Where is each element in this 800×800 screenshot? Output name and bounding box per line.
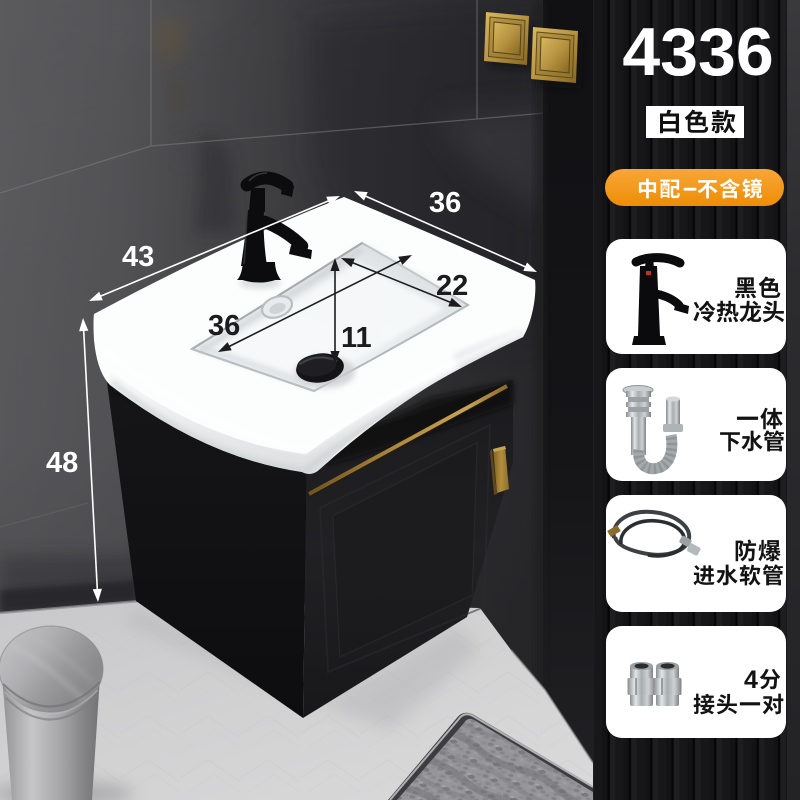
svg-text:36: 36 xyxy=(429,187,461,219)
svg-text:43: 43 xyxy=(122,241,154,273)
svg-text:4336: 4336 xyxy=(622,14,773,90)
svg-text:11: 11 xyxy=(341,322,372,354)
svg-text:22: 22 xyxy=(436,270,468,302)
svg-text:4: 4 xyxy=(744,666,758,694)
svg-text:48: 48 xyxy=(46,447,78,479)
svg-text:36: 36 xyxy=(208,310,240,342)
